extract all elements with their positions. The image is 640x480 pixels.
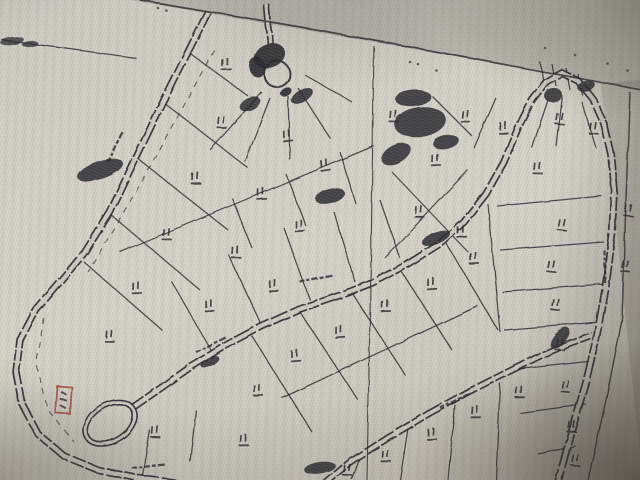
lot-number-mark [266,279,279,293]
top-culdesac-blob [279,86,293,99]
red-stamp-glyphs [58,391,67,409]
lot-number-mark [556,218,567,231]
road-casing-left-lane [16,12,208,480]
street-name-smudge [604,250,605,283]
lot-line [190,410,196,462]
ink-blob [314,185,347,207]
leader-scribble [0,35,24,46]
lot-line [448,405,455,480]
lot-number-mark [497,122,509,136]
loop-culdesac-core [78,393,143,452]
ink-blob [237,94,262,114]
lot-line [252,336,312,432]
lot-number-mark [229,245,241,259]
section-line [367,46,374,480]
ink-speck [544,47,547,50]
lot-line [286,174,306,226]
lot-number-mark [545,260,556,273]
lot-number-mark [292,219,305,233]
lot-line [504,322,600,330]
lot-number-mark [622,204,633,217]
leader-scribble [22,40,38,47]
lot-line [163,102,248,168]
lot-number-mark [428,153,441,167]
lot-number-mark [469,405,481,419]
lot-line [334,212,355,282]
plat-map [0,0,640,480]
lot-line [556,95,562,146]
lot-line [228,254,262,326]
lot-number-mark [254,187,267,201]
ink-blob [74,154,125,186]
lot-line [288,96,290,160]
ink-speck [409,61,412,64]
red-stamp [55,386,72,414]
leader-line [2,40,136,58]
street-name-smudge [132,465,165,468]
map-ink-layer [0,0,640,480]
lot-number-mark [288,349,301,363]
ink-speck [157,7,160,10]
lot-number-mark [202,299,215,313]
loop-outer-dashed [36,318,74,442]
lot-line [398,266,452,350]
ink-speck [165,9,168,12]
lot-number-mark [466,251,479,265]
lot-number-mark [218,57,231,71]
lot-number-mark [103,330,115,344]
ink-speck [417,63,420,66]
lot-line [232,198,252,248]
lot-number-mark [280,129,293,144]
lot-number-mark [332,325,345,339]
lot-line [284,228,310,300]
lot-line [380,200,400,258]
street-name-smudge [108,133,123,162]
lot-number-mark [215,116,227,130]
lot-number-mark [378,299,391,313]
lot-number-mark [619,260,630,273]
lot-number-mark [513,385,525,399]
street-name-smudge [300,276,332,282]
lot-line [474,98,496,148]
lot-number-mark [129,281,142,295]
lot-line [172,282,212,352]
lot-line [500,242,604,250]
lot-number-mark [250,383,263,397]
lot-number-mark [424,427,436,441]
ink-speck [574,54,577,57]
lot-number-mark [459,110,471,123]
lot-number-mark [569,454,580,467]
lot-number-mark [379,449,391,463]
lot-line [142,430,150,478]
lot-number-mark [424,277,437,291]
lot-line [502,284,603,292]
ink-blob [392,104,448,141]
ink-speck [626,69,629,72]
top-border [140,0,640,90]
lot-line [532,100,548,148]
screen-photo [0,0,640,480]
ink-blob [378,139,415,170]
ink-speck [435,69,438,72]
lot-line [137,158,228,230]
ink-blobs-layer [74,79,596,476]
lot-number-mark [237,433,249,447]
lot-number-mark [559,380,570,393]
lot-number-mark [413,205,425,219]
lot-line [110,214,200,290]
lot-line [84,262,162,330]
ink-blob [543,87,563,104]
lot-line [300,312,358,400]
lot-line [305,75,352,102]
lot-number-mark [189,171,201,185]
ink-blob [289,85,316,107]
lot-line [400,428,408,480]
road-core-left-lane [16,12,208,480]
lot-line [188,52,248,96]
lot-lines-layer [36,50,604,480]
lot-number-mark [149,426,161,440]
ink-blob [394,88,431,107]
lot-line [282,306,478,398]
lot-line [350,290,406,376]
lot-line [497,196,602,206]
lot-line [496,383,500,480]
lot-line [488,204,500,332]
ink-blob [432,132,460,151]
road-casing-lower-road [322,335,592,480]
lot-number-mark [550,298,561,311]
lot-number-mark [531,162,543,176]
ink-speck [607,63,610,66]
lot-number-mark [387,110,399,124]
